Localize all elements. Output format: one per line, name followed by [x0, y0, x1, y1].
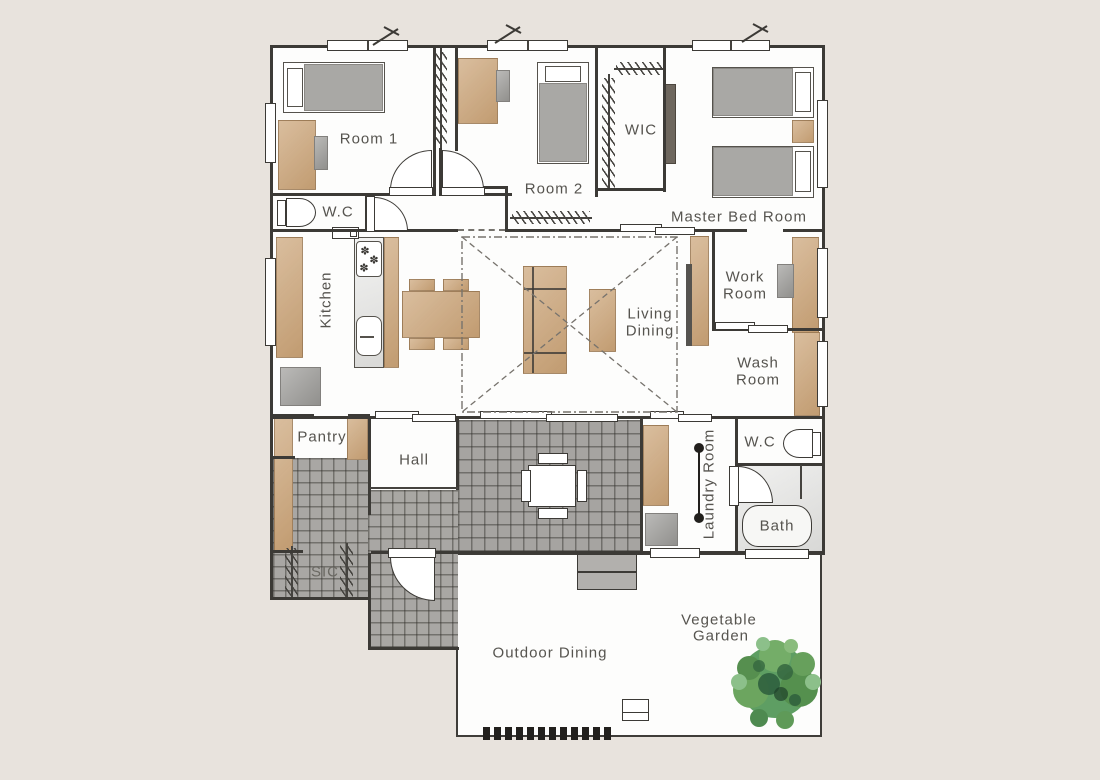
- closet-line: [614, 68, 664, 70]
- window-divider: [527, 41, 529, 50]
- wall-segment: [712, 416, 825, 419]
- master-mirror: [665, 84, 676, 164]
- window: [817, 341, 828, 407]
- wall-segment: [433, 148, 436, 196]
- wall-segment: [368, 553, 371, 650]
- wc-door-leaf: [366, 196, 375, 232]
- wall-segment: [270, 550, 303, 553]
- kitchen-island-wood-top: [384, 237, 399, 368]
- sliding-door: [678, 414, 712, 422]
- window-divider: [367, 41, 369, 50]
- stove-burner-icon: ✽: [359, 262, 368, 275]
- bath-door-leaf: [729, 466, 739, 506]
- wall-segment: [595, 188, 666, 191]
- room1-label: Room 1: [340, 131, 399, 148]
- toilet-tank-lower: [812, 432, 821, 456]
- room2-mattress: [539, 83, 587, 162]
- vegetable-garden-label-line1: Vegetable: [681, 612, 757, 629]
- wall-segment: [270, 597, 371, 600]
- washing-machine: [645, 513, 678, 546]
- toilet-tank-upper: [277, 200, 286, 226]
- window: [745, 549, 809, 559]
- wall-segment: [434, 551, 458, 554]
- laundry-room-label: Laundry Room: [701, 429, 718, 539]
- wall-segment: [371, 551, 389, 554]
- room1-door-leaf: [389, 187, 433, 196]
- closet-line: [291, 546, 293, 598]
- pantry-shelf-right: [347, 416, 368, 460]
- room1-desk: [278, 120, 316, 190]
- sliding-door: [546, 414, 618, 422]
- wall-segment: [433, 45, 436, 151]
- wash-room-label-line1: Wash: [737, 355, 779, 372]
- kitchen-label: Kitchen: [318, 271, 335, 328]
- wic-label: WIC: [625, 122, 657, 139]
- front-door-leaf: [388, 548, 436, 558]
- work-room-label-line2: Room: [723, 286, 767, 303]
- wall-segment: [348, 414, 370, 417]
- stove-burner-icon: ✽: [360, 245, 369, 258]
- master-nightstand: [792, 120, 814, 143]
- kitchen-wall-counter: [276, 237, 303, 358]
- wall-segment: [595, 45, 598, 197]
- wc-lower-label: W.C: [744, 434, 775, 451]
- wall-segment: [270, 456, 295, 459]
- sliding-door: [412, 414, 456, 422]
- tv: [686, 264, 692, 346]
- living-label-line2: Dining: [626, 323, 675, 340]
- wall-segment: [695, 229, 747, 232]
- outdoor-chair: [538, 508, 568, 519]
- room1-pillow: [287, 68, 303, 107]
- dining-chair: [409, 279, 435, 291]
- wall-segment: [368, 416, 371, 515]
- wall-segment: [270, 414, 314, 417]
- window: [265, 103, 276, 163]
- wall-segment: [663, 45, 666, 192]
- sic-label: SIC: [311, 564, 339, 581]
- master-pillow-2: [795, 151, 811, 192]
- toilet-bowl-lower: [783, 429, 813, 458]
- sliding-door: [655, 227, 695, 235]
- window: [817, 100, 828, 188]
- wall-segment: [505, 229, 620, 232]
- garden-steps: [577, 554, 637, 590]
- pantry-shelf-left: [274, 418, 293, 552]
- closet-line: [346, 543, 348, 598]
- wall-segment: [783, 229, 825, 232]
- wc-upper-label: W.C: [322, 204, 353, 221]
- outdoor-table: [528, 465, 576, 507]
- garden-planter: [622, 699, 649, 721]
- work-chair: [777, 264, 794, 298]
- window: [817, 248, 828, 318]
- awning-window-icon: [494, 24, 524, 44]
- floor-plan: ✽ ✽ ✽: [0, 0, 1100, 780]
- room2-door-leaf: [441, 187, 485, 196]
- garden-fence: [483, 727, 614, 740]
- master-mattress-1: [713, 68, 793, 116]
- tv-board: [690, 236, 709, 346]
- wash-room-label-line2: Room: [736, 372, 780, 389]
- wall-segment: [456, 416, 459, 490]
- laundry-counter: [643, 425, 669, 506]
- wall-segment: [455, 45, 458, 151]
- outdoor-chair: [577, 470, 587, 502]
- awning-window-icon: [741, 23, 771, 43]
- stove-burner-icon: ✽: [369, 254, 378, 267]
- bath-label: Bath: [760, 518, 795, 535]
- room2-desk: [458, 58, 498, 124]
- opening-dashed-line: [458, 229, 505, 231]
- master-bedroom-label: Master Bed Room: [671, 209, 807, 226]
- tree-icon: [723, 630, 827, 734]
- wall-segment: [640, 416, 643, 555]
- outdoor-dining-label: Outdoor Dining: [493, 645, 608, 662]
- closet-line: [440, 48, 442, 148]
- room1-chair: [314, 136, 328, 170]
- awning-window-icon: [372, 26, 402, 46]
- wall-segment: [618, 416, 650, 419]
- dining-chair: [409, 338, 435, 350]
- window: [650, 548, 700, 558]
- wall-segment: [712, 229, 715, 330]
- room1-mattress: [304, 64, 383, 111]
- wall-segment: [505, 186, 508, 232]
- wall-segment: [368, 647, 459, 650]
- sliding-door: [748, 325, 788, 333]
- work-desk: [792, 237, 819, 333]
- vegetable-garden-label-line2: Garden: [693, 628, 749, 645]
- hall-label: Hall: [399, 452, 429, 469]
- work-room-label-line1: Work: [726, 269, 765, 286]
- kitchen-mat: [280, 367, 321, 406]
- window-divider: [730, 41, 732, 50]
- window: [265, 258, 276, 346]
- bath-partition: [800, 465, 802, 499]
- wall-segment: [270, 229, 458, 232]
- living-label-line1: Living: [627, 306, 672, 323]
- hall-step-edge: [370, 487, 458, 489]
- sink-faucet: [360, 336, 374, 338]
- master-mattress-2: [713, 147, 793, 196]
- room2-chair: [496, 70, 510, 102]
- pantry-label: Pantry: [297, 429, 346, 446]
- planter-line: [623, 712, 648, 713]
- wall-segment: [735, 463, 825, 466]
- outdoor-chair: [521, 470, 531, 502]
- closet-line: [608, 74, 610, 190]
- room2-pillow: [545, 66, 581, 82]
- step-edge: [578, 571, 636, 573]
- master-pillow-1: [795, 72, 811, 112]
- outdoor-chair: [538, 453, 568, 464]
- closet-line: [510, 217, 592, 219]
- room2-label: Room 2: [525, 181, 584, 198]
